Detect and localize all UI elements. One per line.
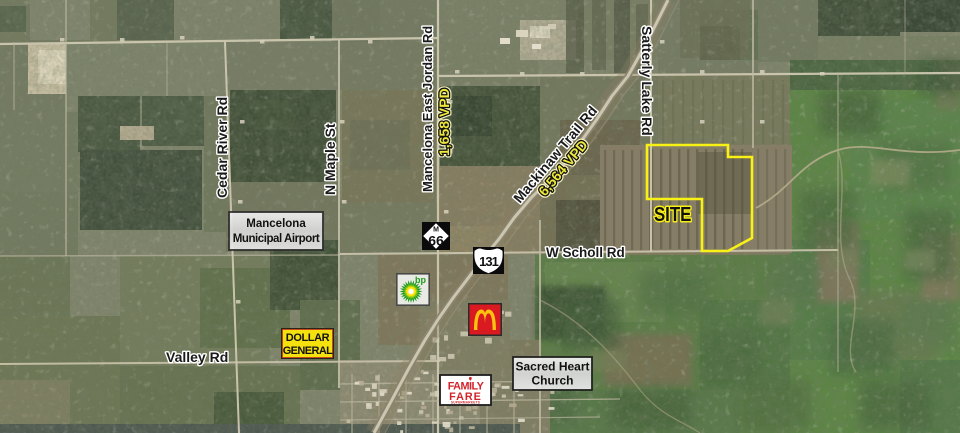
svg-text:bp: bp [415, 275, 426, 285]
svg-text:Satterly Lake Rd: Satterly Lake Rd [639, 26, 655, 136]
svg-text:DOLLAR: DOLLAR [286, 332, 330, 344]
svg-text:SUPERMARKETS: SUPERMARKETS [451, 400, 480, 404]
svg-text:Mancelona: Mancelona [246, 218, 306, 230]
svg-text:Church: Church [532, 374, 574, 388]
svg-text:GENERAL: GENERAL [283, 345, 333, 357]
svg-text:Valley Rd: Valley Rd [166, 349, 228, 365]
svg-text:Sacred Heart: Sacred Heart [515, 360, 589, 374]
svg-text:1,658 VPD: 1,658 VPD [436, 88, 452, 156]
svg-text:Cedar River Rd: Cedar River Rd [214, 97, 230, 198]
svg-text:N Maple St: N Maple St [322, 123, 338, 195]
svg-text:Mancelona East Jordan Rd: Mancelona East Jordan Rd [420, 26, 435, 192]
svg-text:66: 66 [428, 233, 444, 249]
svg-text:SITE: SITE [654, 203, 691, 226]
svg-text:W Scholl Rd: W Scholl Rd [546, 245, 625, 260]
svg-text:Municipal Airport: Municipal Airport [233, 233, 320, 245]
svg-text:131: 131 [479, 254, 498, 269]
